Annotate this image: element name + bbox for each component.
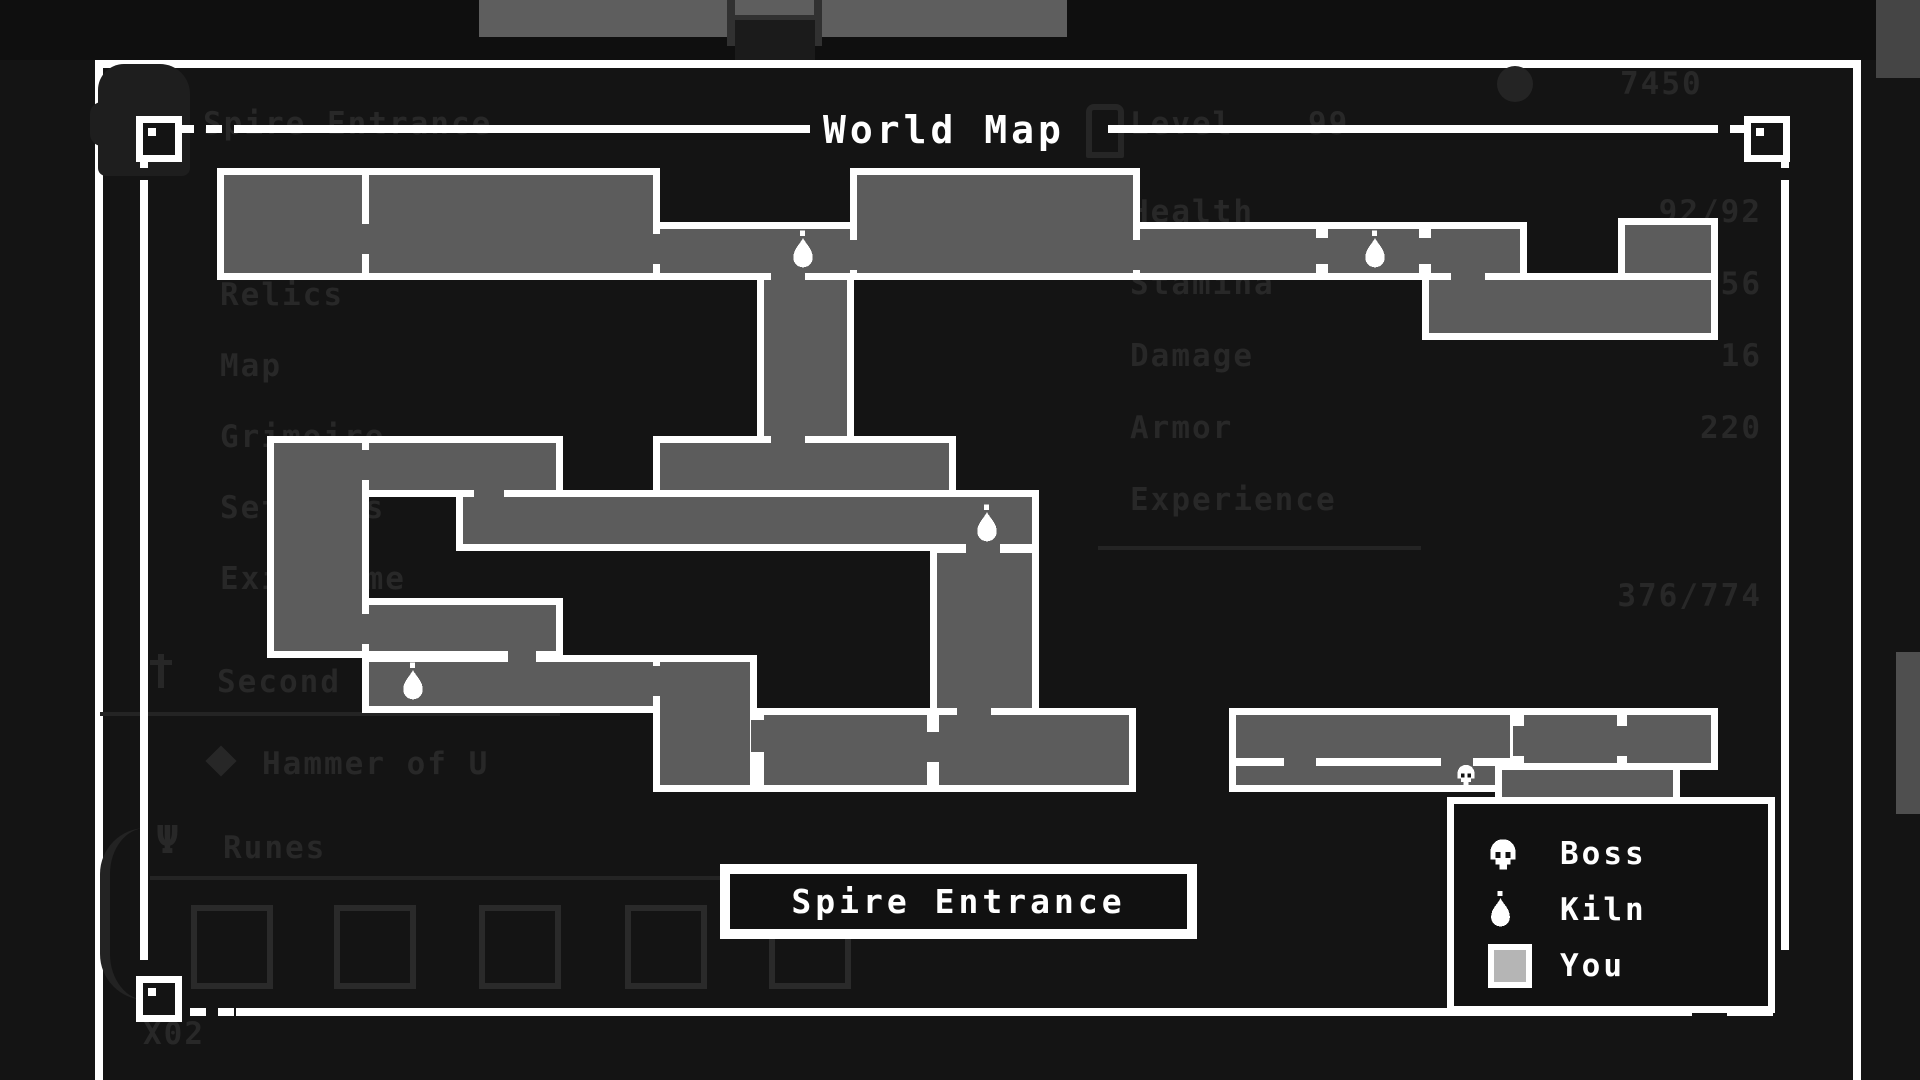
game-screen: 7450 » Spire Entrance RelicsMapGrimoireS… <box>0 0 1920 1080</box>
legend-row: Boss <box>1488 826 1768 882</box>
modal-border <box>242 125 810 133</box>
modal-border <box>140 188 148 960</box>
legend-row: Kiln <box>1488 882 1768 938</box>
world-map-title: World Map <box>823 108 1065 152</box>
legend-row: You <box>1488 938 1768 994</box>
corner-ornament-icon <box>1744 116 1790 162</box>
legend-label: Kiln <box>1560 892 1647 928</box>
player-square-icon <box>1488 944 1560 988</box>
corner-ornament-icon <box>136 976 182 1022</box>
skull-icon <box>1488 838 1560 870</box>
location-label: Spire Entrance <box>720 864 1197 939</box>
modal-border <box>190 1008 236 1016</box>
flame-icon <box>1488 891 1560 929</box>
legend-label: Boss <box>1560 836 1647 872</box>
modal-border <box>1702 125 1746 133</box>
modal-border <box>1108 125 1702 133</box>
map-legend: BossKilnYou <box>1447 797 1775 1013</box>
corner-ornament-icon <box>136 116 182 162</box>
modal-border <box>1781 188 1789 950</box>
location-label-text: Spire Entrance <box>791 882 1125 921</box>
legend-label: You <box>1560 948 1625 984</box>
